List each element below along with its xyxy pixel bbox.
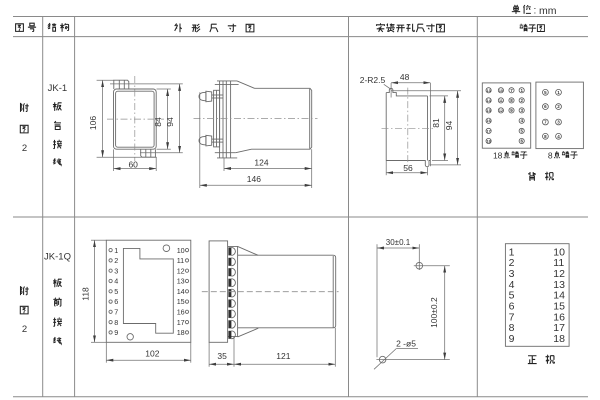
svg-text:94: 94: [165, 117, 175, 127]
svg-text:106: 106: [88, 116, 98, 130]
svg-text:100±0.2: 100±0.2: [429, 297, 439, 328]
svg-text:13: 13: [177, 277, 185, 286]
svg-text:16: 16: [177, 308, 185, 317]
svg-text:2 -ø5: 2 -ø5: [396, 338, 416, 348]
svg-text:12: 12: [499, 109, 503, 113]
svg-text:7: 7: [544, 120, 547, 125]
svg-text:118: 118: [80, 287, 90, 301]
svg-text:2: 2: [22, 324, 27, 335]
svg-text:5: 5: [544, 90, 547, 95]
svg-text:8: 8: [114, 318, 118, 327]
svg-text:1: 1: [114, 246, 118, 255]
svg-text:6: 6: [520, 139, 523, 144]
svg-text:56: 56: [403, 163, 413, 173]
svg-text:3: 3: [557, 120, 560, 125]
svg-text::: :: [534, 6, 537, 17]
svg-text:1: 1: [557, 90, 560, 95]
svg-text:18: 18: [553, 333, 565, 345]
svg-text:13: 13: [487, 89, 491, 93]
svg-text:5: 5: [114, 287, 118, 296]
svg-text:4: 4: [557, 134, 560, 139]
svg-text:2: 2: [22, 143, 27, 154]
svg-text:18: 18: [177, 328, 185, 337]
svg-text:mm: mm: [539, 5, 557, 17]
svg-text:8: 8: [544, 134, 547, 139]
svg-text:124: 124: [254, 157, 268, 167]
svg-text:12: 12: [177, 266, 185, 275]
svg-text:9: 9: [510, 108, 513, 113]
svg-text:17: 17: [177, 318, 185, 327]
svg-text:102: 102: [145, 349, 159, 359]
svg-text:48: 48: [400, 72, 410, 82]
svg-text:6: 6: [114, 297, 118, 306]
svg-text:9: 9: [114, 328, 118, 337]
svg-text:60: 60: [128, 160, 138, 170]
svg-text:17: 17: [487, 129, 491, 133]
svg-text:35: 35: [217, 351, 227, 361]
svg-text:146: 146: [247, 174, 261, 184]
svg-text:10: 10: [177, 246, 185, 255]
svg-text:3: 3: [114, 266, 118, 275]
svg-text:11: 11: [499, 99, 503, 103]
svg-text:18: 18: [487, 140, 491, 144]
svg-text:11: 11: [177, 256, 184, 265]
svg-text:1: 1: [520, 88, 523, 93]
svg-text:8: 8: [510, 98, 513, 103]
svg-text:7: 7: [510, 88, 513, 93]
svg-text:4: 4: [114, 277, 118, 286]
svg-text:14: 14: [177, 287, 185, 296]
svg-text:5: 5: [520, 128, 523, 133]
svg-text:10: 10: [499, 89, 503, 93]
svg-text:2: 2: [520, 98, 523, 103]
svg-text:2: 2: [557, 104, 560, 109]
svg-text:81: 81: [431, 118, 441, 128]
svg-text:2-R2.5: 2-R2.5: [360, 75, 386, 85]
svg-text:8: 8: [548, 150, 553, 160]
svg-text:JK-1Q: JK-1Q: [44, 252, 71, 263]
svg-text:7: 7: [114, 308, 118, 317]
svg-text:15: 15: [177, 297, 185, 306]
svg-text:2: 2: [114, 256, 118, 265]
svg-text:3: 3: [520, 108, 523, 113]
svg-text:84: 84: [153, 117, 163, 127]
svg-text:15: 15: [487, 109, 491, 113]
svg-text:121: 121: [276, 351, 290, 361]
svg-text:6: 6: [544, 104, 547, 109]
svg-text:4: 4: [520, 118, 523, 123]
svg-text:30±0.1: 30±0.1: [386, 238, 411, 247]
svg-text:16: 16: [487, 119, 491, 123]
svg-text:JK-1: JK-1: [48, 83, 68, 94]
svg-text:18: 18: [493, 150, 503, 160]
svg-text:9: 9: [509, 333, 515, 345]
svg-text:94: 94: [444, 121, 454, 131]
